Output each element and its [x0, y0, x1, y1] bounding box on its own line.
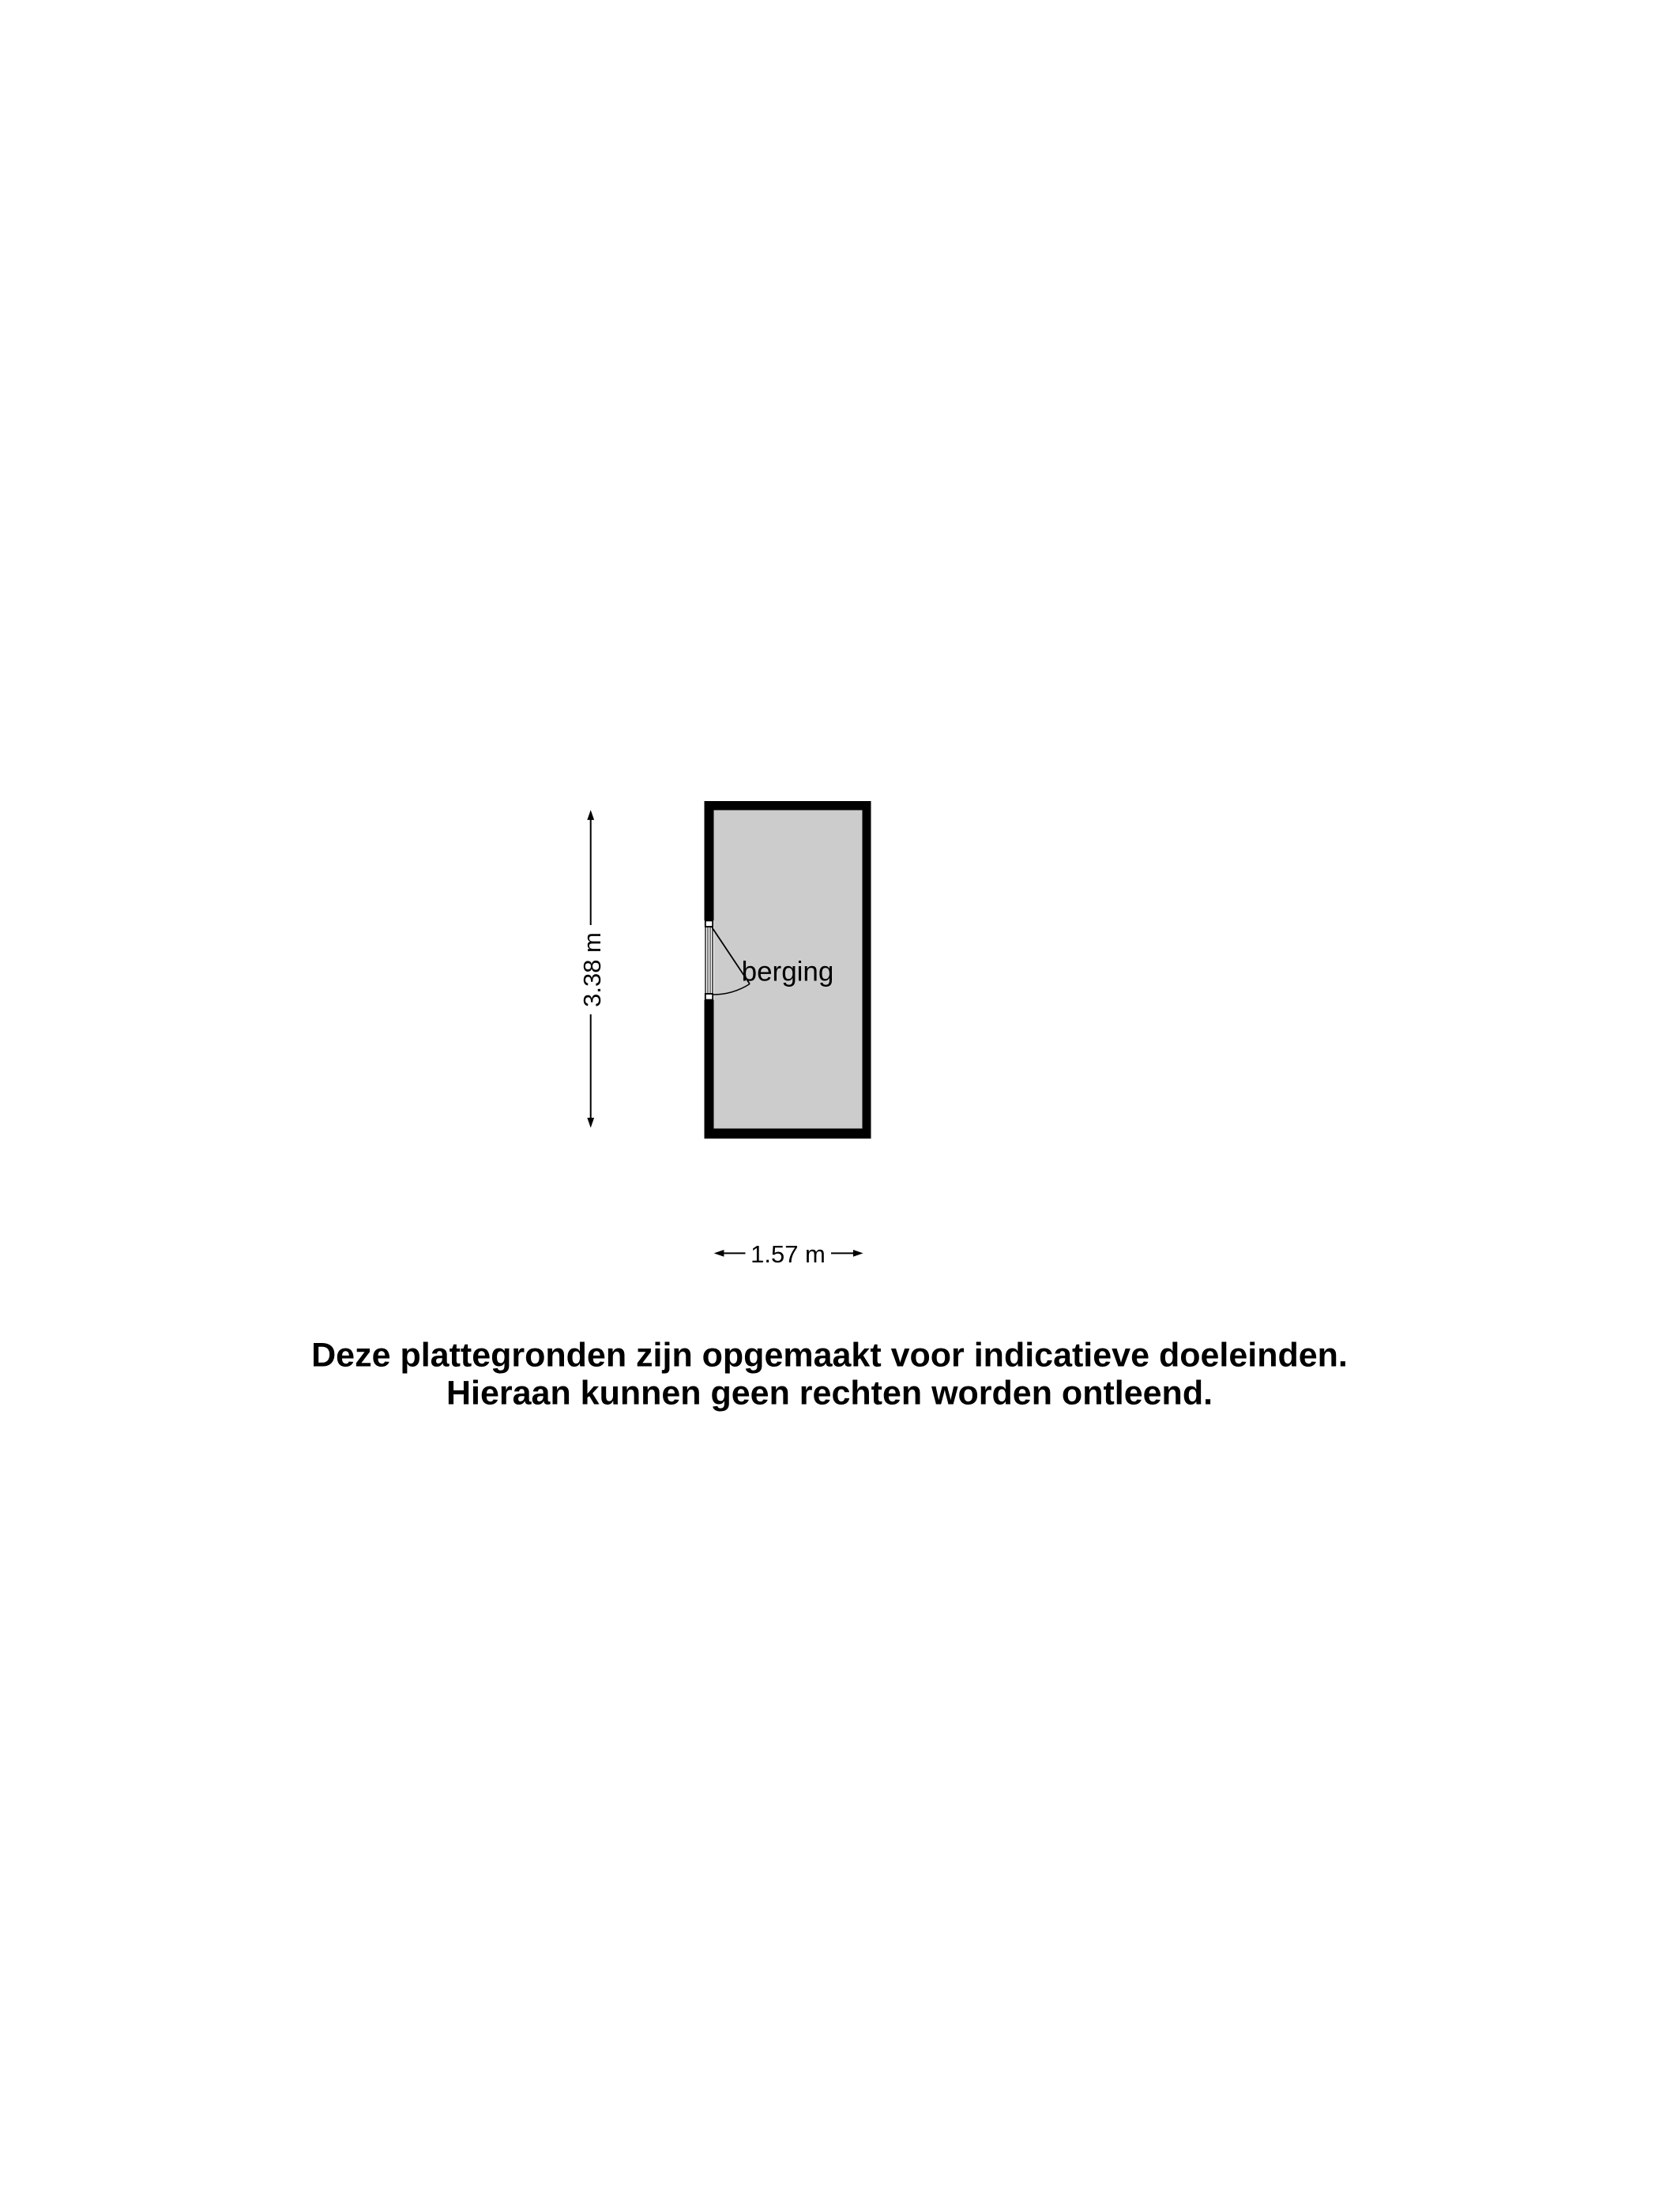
svg-text:1.57 m: 1.57 m [750, 1240, 826, 1268]
svg-text:Hieraan kunnen geen rechten wo: Hieraan kunnen geen rechten worden ontle… [446, 1374, 1213, 1412]
svg-text:Deze plattegronden zijn opgema: Deze plattegronden zijn opgemaakt voor i… [311, 1336, 1348, 1374]
svg-text:3.38 m: 3.38 m [578, 932, 606, 1007]
svg-text:berging: berging [742, 956, 834, 987]
